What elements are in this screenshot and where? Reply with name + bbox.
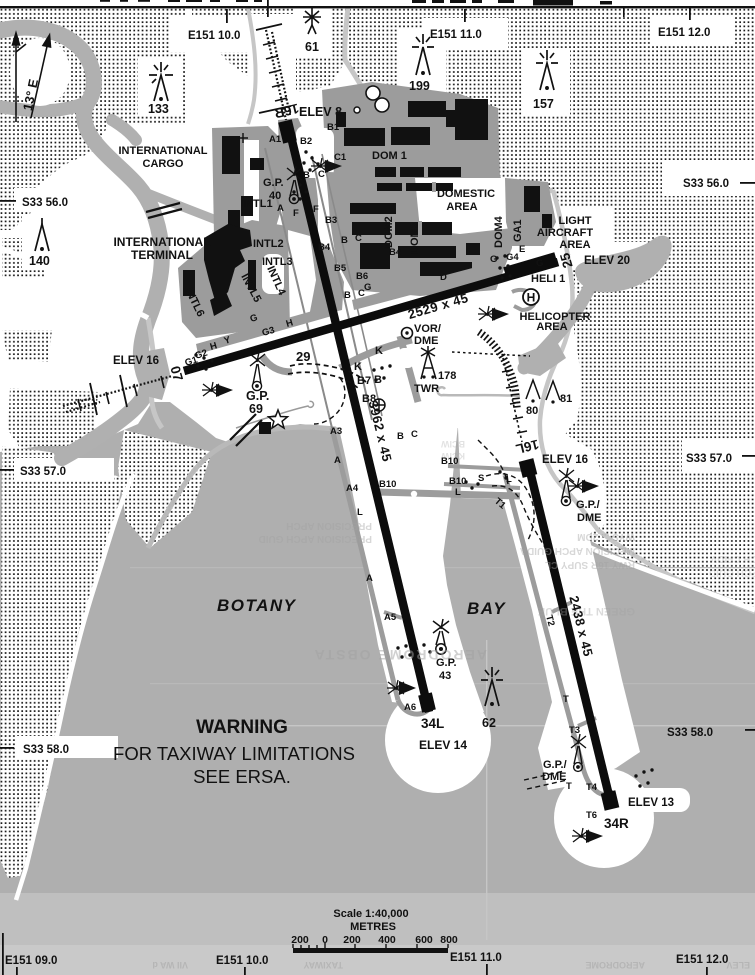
- svg-text:G: G: [536, 258, 543, 269]
- svg-text:NCH CFIDV: NCH CFIDV: [710, 553, 755, 564]
- svg-text:G.P./: G.P./: [576, 499, 600, 511]
- svg-text:AREA: AREA: [446, 201, 477, 213]
- svg-text:B2: B2: [300, 136, 312, 147]
- svg-text:G.P.: G.P.: [263, 177, 284, 189]
- svg-text:WARNING: WARNING: [196, 717, 288, 738]
- svg-text:B10: B10: [449, 476, 466, 487]
- svg-text:A1: A1: [269, 134, 282, 145]
- svg-text:G.P.: G.P.: [246, 389, 269, 403]
- svg-text:200: 200: [291, 934, 309, 946]
- svg-text:Scale 1:40,000: Scale 1:40,000: [333, 908, 408, 920]
- svg-text:PRECISION APCH: PRECISION APCH: [286, 520, 372, 531]
- svg-text:DOM2: DOM2: [383, 216, 395, 248]
- svg-text:S33 56.0: S33 56.0: [22, 197, 68, 209]
- svg-text:G.P.: G.P.: [436, 657, 457, 669]
- svg-text:E151 12.0: E151 12.0: [658, 27, 710, 39]
- svg-text:B4: B4: [318, 242, 331, 253]
- svg-text:T6: T6: [586, 810, 597, 821]
- svg-text:ELEV 14: ELEV 14: [419, 738, 467, 752]
- svg-text:AERODROME: AERODROME: [585, 960, 645, 970]
- svg-text:B7: B7: [357, 375, 371, 387]
- svg-text:TWR: TWR: [414, 383, 439, 395]
- svg-text:S33 57.0: S33 57.0: [686, 453, 732, 465]
- svg-text:G4: G4: [506, 252, 519, 263]
- svg-text:61: 61: [305, 40, 319, 54]
- svg-text:ELEV 8: ELEV 8: [299, 105, 342, 119]
- svg-text:C1: C1: [334, 152, 347, 163]
- svg-text:K: K: [375, 345, 383, 357]
- svg-text:29: 29: [296, 349, 310, 364]
- svg-text:ELEV 13: ELEV 13: [628, 797, 674, 809]
- svg-text:81: 81: [560, 393, 572, 405]
- svg-text:B6: B6: [356, 271, 368, 282]
- svg-text:C: C: [355, 233, 362, 244]
- svg-text:DME: DME: [414, 335, 438, 347]
- svg-text:ELEV: ELEV: [726, 960, 750, 970]
- svg-text:G.P./: G.P./: [543, 759, 567, 771]
- svg-text:E151 12.0: E151 12.0: [676, 954, 728, 966]
- svg-text:G: G: [490, 254, 497, 265]
- svg-text:F: F: [293, 208, 299, 219]
- svg-text:DME: DME: [542, 771, 566, 783]
- svg-text:A6: A6: [404, 702, 416, 713]
- svg-text:G: G: [364, 282, 371, 293]
- svg-text:BCIW: BCIW: [441, 439, 465, 449]
- svg-text:HELI 1: HELI 1: [531, 273, 565, 285]
- svg-text:400: 400: [378, 934, 396, 946]
- svg-text:TAXIWAY: TAXIWAY: [303, 960, 343, 970]
- svg-text:L: L: [455, 487, 461, 498]
- svg-text:DOM 1: DOM 1: [372, 150, 407, 162]
- svg-text:800: 800: [440, 934, 458, 946]
- svg-text:WYS ... 2DM: WYS ... 2DM: [577, 531, 635, 542]
- svg-text:B5: B5: [334, 263, 347, 274]
- svg-text:34L: 34L: [421, 716, 444, 731]
- svg-text:L: L: [506, 474, 512, 485]
- svg-text:INTL1: INTL1: [242, 198, 273, 210]
- svg-text:62: 62: [482, 716, 496, 730]
- svg-text:AERODROME OBSTA: AERODROME OBSTA: [313, 647, 487, 663]
- svg-text:B: B: [341, 235, 348, 246]
- svg-text:34R: 34R: [604, 816, 629, 831]
- svg-text:INTERNATIONAL: INTERNATIONAL: [118, 145, 207, 157]
- svg-text:B: B: [303, 170, 310, 181]
- svg-text:APCH GUID: APCH GUID: [709, 567, 755, 578]
- svg-text:RWY 16R SUPY CL: RWY 16R SUPY CL: [545, 559, 635, 570]
- svg-text:A4: A4: [346, 483, 359, 494]
- svg-text:VII WA d: VII WA d: [152, 960, 188, 970]
- svg-text:AREA: AREA: [559, 239, 590, 251]
- svg-text:S33 58.0: S33 58.0: [667, 727, 713, 739]
- svg-text:S33 56.0: S33 56.0: [683, 178, 729, 190]
- svg-text:133: 133: [148, 102, 169, 116]
- svg-text:69: 69: [249, 402, 263, 416]
- svg-text:B: B: [344, 290, 351, 301]
- svg-text:DOMESTIC: DOMESTIC: [437, 188, 495, 200]
- svg-text:S: S: [478, 473, 484, 484]
- svg-text:B: B: [374, 374, 382, 386]
- svg-text:80: 80: [526, 405, 538, 417]
- svg-text:43: 43: [439, 670, 451, 682]
- svg-text:DME: DME: [577, 512, 601, 524]
- svg-text:MECISION APCH GUIDA: MECISION APCH GUIDA: [520, 545, 635, 556]
- svg-text:T3: T3: [569, 725, 580, 736]
- svg-text:C: C: [318, 169, 325, 180]
- svg-text:C: C: [411, 429, 418, 440]
- svg-text:157: 157: [533, 97, 554, 111]
- svg-text:B3: B3: [325, 215, 337, 226]
- svg-text:D: D: [440, 272, 447, 283]
- svg-text:VOR/: VOR/: [414, 323, 441, 335]
- svg-text:E151 09.0: E151 09.0: [5, 955, 57, 967]
- svg-text:E151 11.0: E151 11.0: [430, 29, 482, 41]
- svg-text:FOR TAXIWAY LIMITATIONS: FOR TAXIWAY LIMITATIONS: [113, 743, 355, 764]
- svg-text:E: E: [519, 244, 525, 255]
- svg-text:SEE ERSA.: SEE ERSA.: [193, 766, 291, 787]
- svg-text:AIRCRAFT: AIRCRAFT: [537, 227, 593, 239]
- svg-text:178: 178: [438, 370, 456, 382]
- svg-text:E151 10.0: E151 10.0: [188, 30, 240, 42]
- svg-text:DOM4: DOM4: [493, 215, 505, 248]
- svg-text:TERMINAL: TERMINAL: [131, 248, 193, 262]
- svg-text:INTL2: INTL2: [253, 238, 284, 250]
- svg-text:L: L: [357, 507, 363, 518]
- svg-text:METRES: METRES: [350, 921, 396, 933]
- svg-text:B10: B10: [441, 456, 458, 467]
- svg-text:S33 57.0: S33 57.0: [20, 466, 66, 478]
- svg-text:INTERNATIONAL: INTERNATIONAL: [113, 235, 210, 249]
- svg-text:T4: T4: [586, 782, 598, 793]
- svg-text:T: T: [566, 781, 572, 792]
- svg-text:ELEV 20: ELEV 20: [584, 255, 630, 267]
- svg-text:BAY: BAY: [467, 599, 506, 618]
- svg-text:A: A: [277, 203, 284, 214]
- svg-text:S33 58.0: S33 58.0: [23, 744, 69, 756]
- svg-text:A3: A3: [330, 426, 342, 437]
- svg-text:ELEV 16: ELEV 16: [113, 355, 159, 367]
- svg-text:LIGHT: LIGHT: [559, 215, 592, 227]
- svg-text:B10: B10: [379, 479, 396, 490]
- svg-text:600: 600: [415, 934, 433, 946]
- svg-text:F: F: [313, 204, 319, 215]
- svg-text:A5: A5: [384, 612, 397, 623]
- svg-text:K: K: [354, 361, 362, 373]
- svg-text:200: 200: [343, 934, 361, 946]
- svg-text:INTL3: INTL3: [262, 256, 293, 268]
- svg-text:B1: B1: [327, 122, 340, 133]
- svg-text:A: A: [366, 573, 373, 584]
- svg-text:BOTANY: BOTANY: [217, 596, 297, 615]
- svg-text:DOM3: DOM3: [409, 222, 421, 254]
- svg-text:AREA: AREA: [536, 321, 567, 333]
- svg-text:ELEV 16: ELEV 16: [542, 454, 588, 466]
- svg-text:140: 140: [29, 254, 50, 268]
- svg-text:GA1: GA1: [512, 219, 524, 242]
- svg-text:CARGO: CARGO: [143, 158, 184, 170]
- svg-text:199: 199: [409, 79, 430, 93]
- svg-text:H: H: [527, 291, 536, 305]
- svg-text:B: B: [397, 431, 404, 442]
- svg-text:T: T: [563, 694, 569, 705]
- svg-text:E151 10.0: E151 10.0: [216, 955, 268, 967]
- svg-text:E151 11.0: E151 11.0: [450, 952, 502, 964]
- svg-text:PRECISION APCH GUID: PRECISION APCH GUID: [258, 533, 372, 544]
- svg-text:A: A: [334, 455, 341, 466]
